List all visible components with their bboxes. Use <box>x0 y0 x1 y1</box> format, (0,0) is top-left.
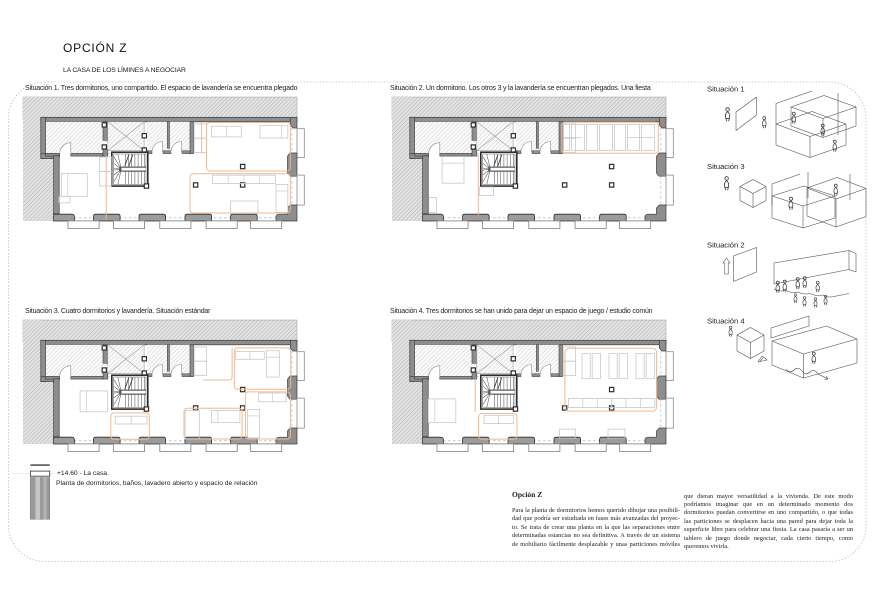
svg-text:Situación 3: Situación 3 <box>707 162 745 171</box>
svg-text:Situación 4: Situación 4 <box>707 317 745 326</box>
svg-text:Situación 1: Situación 1 <box>707 85 745 94</box>
svg-text:Situación 2: Situación 2 <box>707 241 745 250</box>
